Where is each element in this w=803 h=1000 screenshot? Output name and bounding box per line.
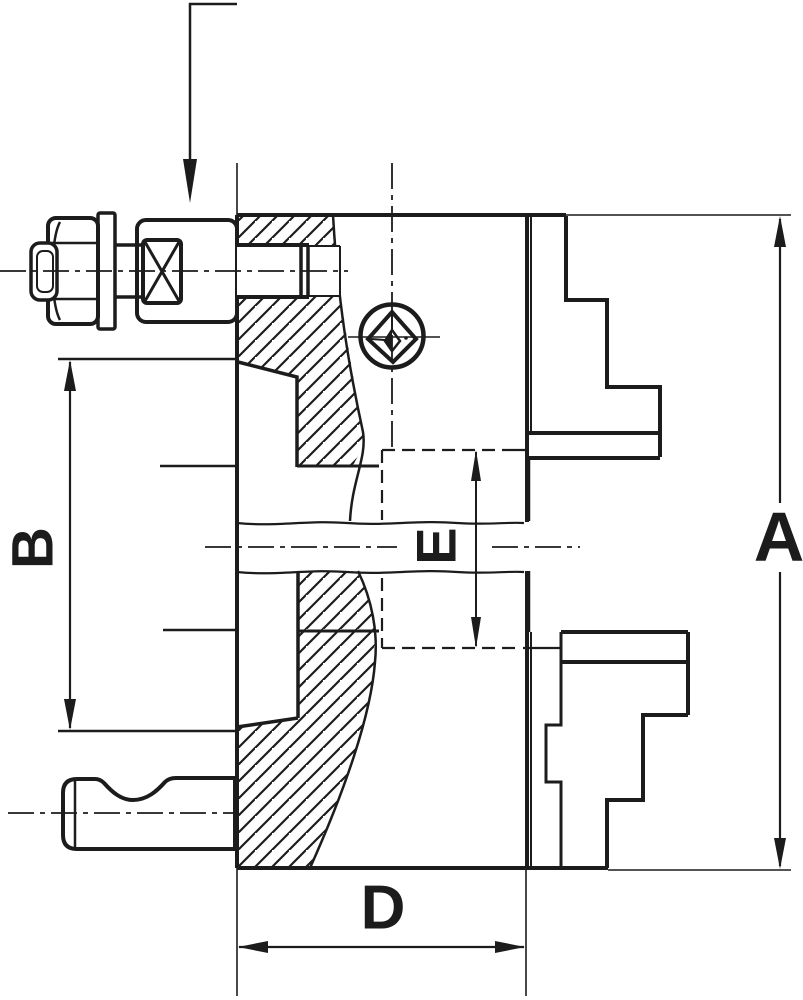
mount-arrow (183, 4, 237, 203)
dim-e-arrow-top-icon (471, 450, 481, 481)
dim-d-label: D (361, 874, 406, 943)
dimension-b: B (1, 359, 238, 731)
dim-a-arrow-bottom-icon (774, 838, 786, 869)
break-line-upper (237, 522, 524, 524)
dim-b-arrow-top-icon (64, 360, 76, 391)
top-jaw (527, 216, 660, 521)
bottom-jaw-guide-strip (561, 632, 688, 715)
dim-d-arrow-left-icon (238, 941, 268, 953)
dim-e-label: E (405, 527, 468, 564)
dim-d-arrow-right-icon (495, 941, 525, 953)
dim-e-arrow-bottom-icon (471, 617, 481, 648)
dim-a-arrow-top-icon (774, 216, 786, 247)
bottom-jaw-wall-notch (546, 632, 561, 868)
mount-arrow-leader (190, 4, 237, 160)
dim-b-extensions (58, 359, 237, 731)
drawing-canvas: A B D E (0, 0, 803, 1000)
dim-b-arrow-bottom-icon (64, 699, 76, 730)
mount-arrow-head-icon (183, 159, 197, 203)
dimension-e: E (405, 450, 482, 648)
break-line-lower (237, 571, 524, 573)
dim-a-label: A (754, 498, 803, 576)
dim-b-label: B (1, 527, 66, 569)
top-jaw-steps (566, 216, 660, 457)
hatching-bottom-flange (237, 571, 376, 868)
bottom-flange-step (237, 571, 298, 727)
bottom-jaw (523, 571, 688, 868)
top-flange-step (238, 362, 297, 467)
chuck-section-drawing: A B D E (0, 0, 803, 1000)
top-jaw-guide-strip (527, 433, 660, 458)
bottom-jaw-steps (607, 715, 688, 868)
dimension-a: A (754, 216, 803, 869)
dimension-d: D (238, 874, 525, 954)
